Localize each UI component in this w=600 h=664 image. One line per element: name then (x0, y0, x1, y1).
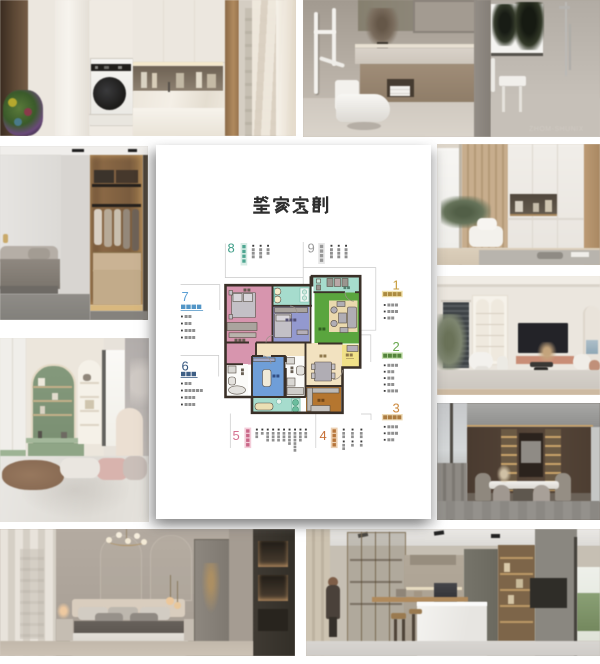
svg-text:1: 1 (393, 278, 400, 293)
svg-text:5: 5 (233, 428, 240, 443)
svg-text:7: 7 (182, 289, 189, 304)
svg-text:3: 3 (393, 401, 400, 416)
svg-text:9: 9 (308, 241, 315, 256)
svg-text:2: 2 (393, 339, 400, 354)
svg-text:8: 8 (228, 241, 235, 256)
svg-text:6: 6 (182, 359, 189, 374)
svg-text:4: 4 (320, 428, 327, 443)
